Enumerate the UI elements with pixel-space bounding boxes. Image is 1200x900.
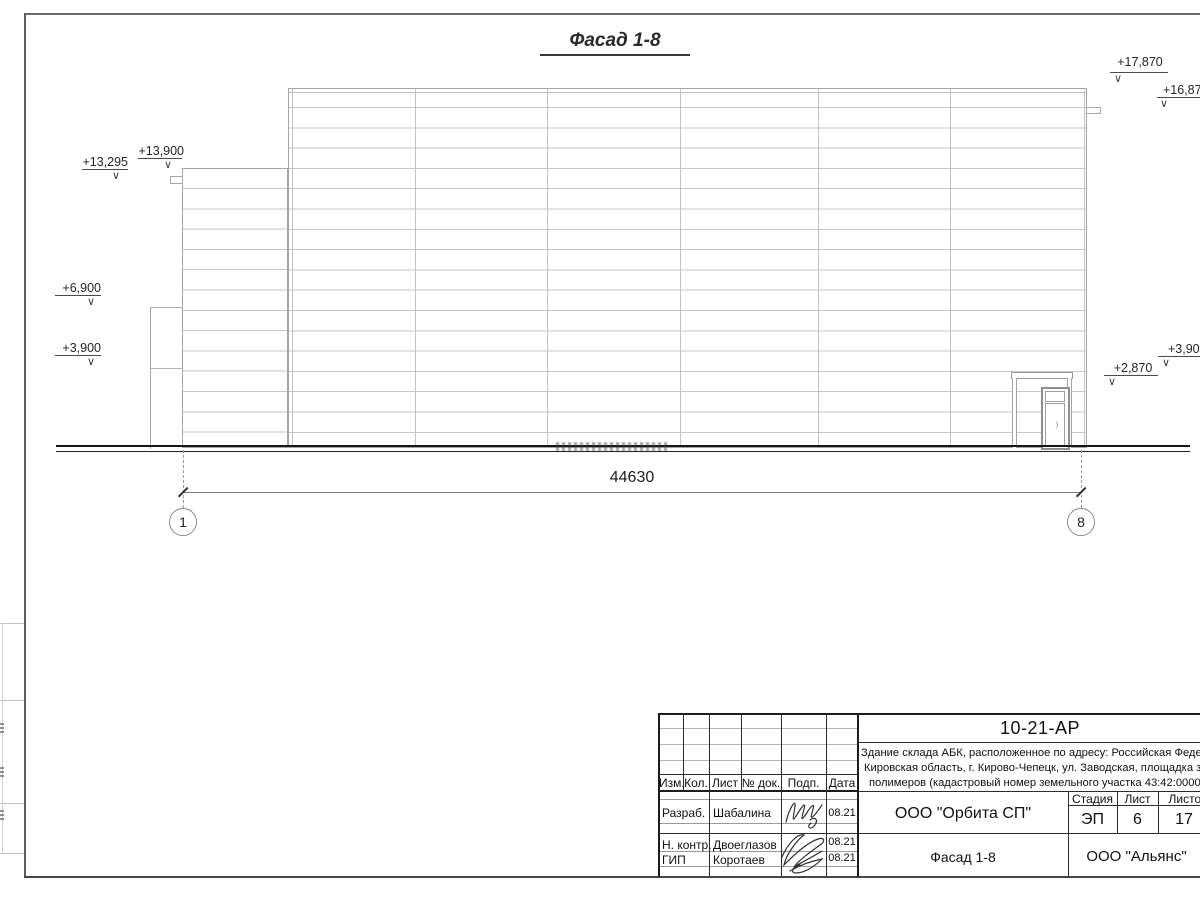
project-address-line3: полимеров (кадастровый номер земельного … bbox=[869, 777, 1200, 789]
left-annex-structure bbox=[150, 307, 183, 449]
row-name: Коротаев bbox=[713, 853, 765, 867]
sheet-frame-bottom bbox=[24, 876, 1200, 878]
row-name: Двоеглазов bbox=[713, 838, 777, 852]
document-number: 10-21-АР bbox=[858, 718, 1200, 739]
project-address-line1: Здание склада АБК, расположенное по адре… bbox=[861, 747, 1200, 759]
elevation-label: +6,900 bbox=[43, 281, 101, 295]
elevation-label: +17,870 bbox=[1112, 55, 1168, 69]
elevation-arrow-icon: ∨ bbox=[1162, 358, 1170, 368]
dimension-value: 44630 bbox=[560, 469, 704, 487]
margin-strip-divider bbox=[0, 853, 24, 854]
titleblock-row-line bbox=[660, 799, 858, 800]
elevation-arrow-icon: ∨ bbox=[87, 357, 95, 367]
panel-seam bbox=[547, 89, 548, 447]
row-name: Шабалина bbox=[713, 806, 771, 820]
margin-strip-divider bbox=[0, 623, 24, 624]
watermark-smudge bbox=[556, 442, 670, 452]
elevation-arrow-icon: ∨ bbox=[164, 160, 172, 170]
signature-korotaev bbox=[776, 829, 830, 877]
elevation-mark-line bbox=[138, 158, 182, 159]
margin-strip-label-fragment bbox=[0, 809, 4, 820]
col-header-doc: № док. bbox=[741, 776, 781, 790]
facade-tall-section bbox=[288, 88, 1087, 448]
panel-seam bbox=[292, 89, 293, 447]
left-annex-divider bbox=[150, 368, 182, 369]
margin-strip-divider bbox=[0, 803, 24, 804]
axis-number: 8 bbox=[1077, 514, 1085, 530]
elevation-label: +13,900 bbox=[126, 144, 184, 158]
facade-low-section bbox=[182, 168, 288, 448]
row-role: Разраб. bbox=[662, 806, 705, 820]
row-date: 08.21 bbox=[826, 836, 858, 848]
elevation-arrow-icon: ∨ bbox=[1160, 99, 1168, 109]
margin-strip-divider bbox=[0, 700, 24, 701]
panel-seam bbox=[415, 89, 416, 447]
col-header-izm: Изм. bbox=[659, 776, 683, 790]
axis-number: 1 bbox=[179, 514, 187, 530]
col-header-list: Лист bbox=[709, 776, 741, 790]
titleblock-border bbox=[658, 713, 660, 877]
stage-value: ЭП bbox=[1068, 811, 1117, 829]
canopy-post-left bbox=[1012, 378, 1017, 448]
sheets-value: 17 bbox=[1158, 811, 1200, 829]
titleblock-row-line bbox=[660, 760, 858, 761]
col-header-kol: Кол. bbox=[683, 776, 709, 790]
elevation-label: +3,900 bbox=[1168, 342, 1200, 356]
axis-extension-line bbox=[183, 450, 185, 508]
design-organization: ООО "Орбита СП" bbox=[858, 805, 1068, 823]
entrance-canopy bbox=[1011, 372, 1073, 379]
titleblock-border bbox=[658, 713, 1200, 715]
row-date: 08.21 bbox=[826, 852, 858, 864]
door-transom-window bbox=[1045, 391, 1065, 402]
signature-shabalina bbox=[782, 796, 826, 832]
sheet-frame-left bbox=[24, 13, 26, 877]
axis-extension-line bbox=[1081, 450, 1083, 508]
elevation-arrow-icon: ∨ bbox=[112, 171, 120, 181]
row-role: ГИП bbox=[662, 853, 686, 867]
titleblock-row-line bbox=[660, 823, 858, 824]
titleblock-row-line bbox=[660, 774, 858, 775]
panel-seam bbox=[680, 89, 681, 447]
elevation-arrow-icon: ∨ bbox=[1114, 74, 1122, 84]
titleblock-row-line bbox=[858, 742, 1200, 743]
right-wall-inner-line bbox=[1084, 90, 1085, 446]
project-address-line2: Кировская область, г. Кирово-Чепецк, ул.… bbox=[864, 762, 1200, 774]
left-parapet-ledge bbox=[170, 176, 183, 184]
client-organization: ООО "Альянс" bbox=[1068, 848, 1200, 865]
col-header-podp: Подп. bbox=[781, 776, 826, 790]
row-date: 08.21 bbox=[826, 807, 858, 819]
axis-bubble-8: 8 bbox=[1067, 508, 1095, 536]
elevation-arrow-icon: ∨ bbox=[1108, 377, 1116, 387]
dimension-line bbox=[183, 492, 1081, 493]
margin-strip-label-fragment bbox=[0, 722, 4, 733]
stage-header: Стадия bbox=[1068, 792, 1117, 806]
elevation-label: +2,870 bbox=[1108, 361, 1158, 375]
right-roof-ledge bbox=[1086, 107, 1101, 114]
titleblock-row-line bbox=[660, 744, 858, 745]
row-role: Н. контр. bbox=[662, 838, 712, 852]
panel-seam bbox=[818, 89, 819, 447]
sheet-value: 6 bbox=[1117, 811, 1158, 829]
elevation-label: +13,295 bbox=[70, 155, 128, 169]
door-handle bbox=[1052, 421, 1058, 428]
titleblock-col-line bbox=[709, 713, 710, 877]
elevation-label: +3,900 bbox=[43, 341, 101, 355]
elevation-arrow-icon: ∨ bbox=[87, 297, 95, 307]
titleblock-row-line bbox=[660, 728, 858, 729]
parapet-line bbox=[289, 92, 1086, 93]
sheet-frame-top bbox=[24, 13, 1200, 15]
titleblock-row-line bbox=[658, 833, 1200, 834]
drawing-sheet: Фасад 1-8 44630 1 8 +13,295 ∨ +13,900 ∨ bbox=[0, 0, 1200, 900]
titleblock-row-line bbox=[660, 790, 858, 792]
margin-strip-label-fragment bbox=[0, 766, 4, 777]
sheet-header: Лист bbox=[1117, 792, 1158, 806]
sheets-header: Листов bbox=[1158, 792, 1200, 806]
drawing-title: Фасад 1-8 bbox=[540, 30, 690, 56]
axis-bubble-1: 1 bbox=[169, 508, 197, 536]
panel-seam bbox=[950, 89, 951, 447]
col-header-data: Дата bbox=[826, 776, 858, 790]
elevation-mark-line bbox=[82, 169, 128, 170]
elevation-label: +16,870 bbox=[1163, 83, 1200, 97]
sheet-name: Фасад 1-8 bbox=[858, 849, 1068, 865]
